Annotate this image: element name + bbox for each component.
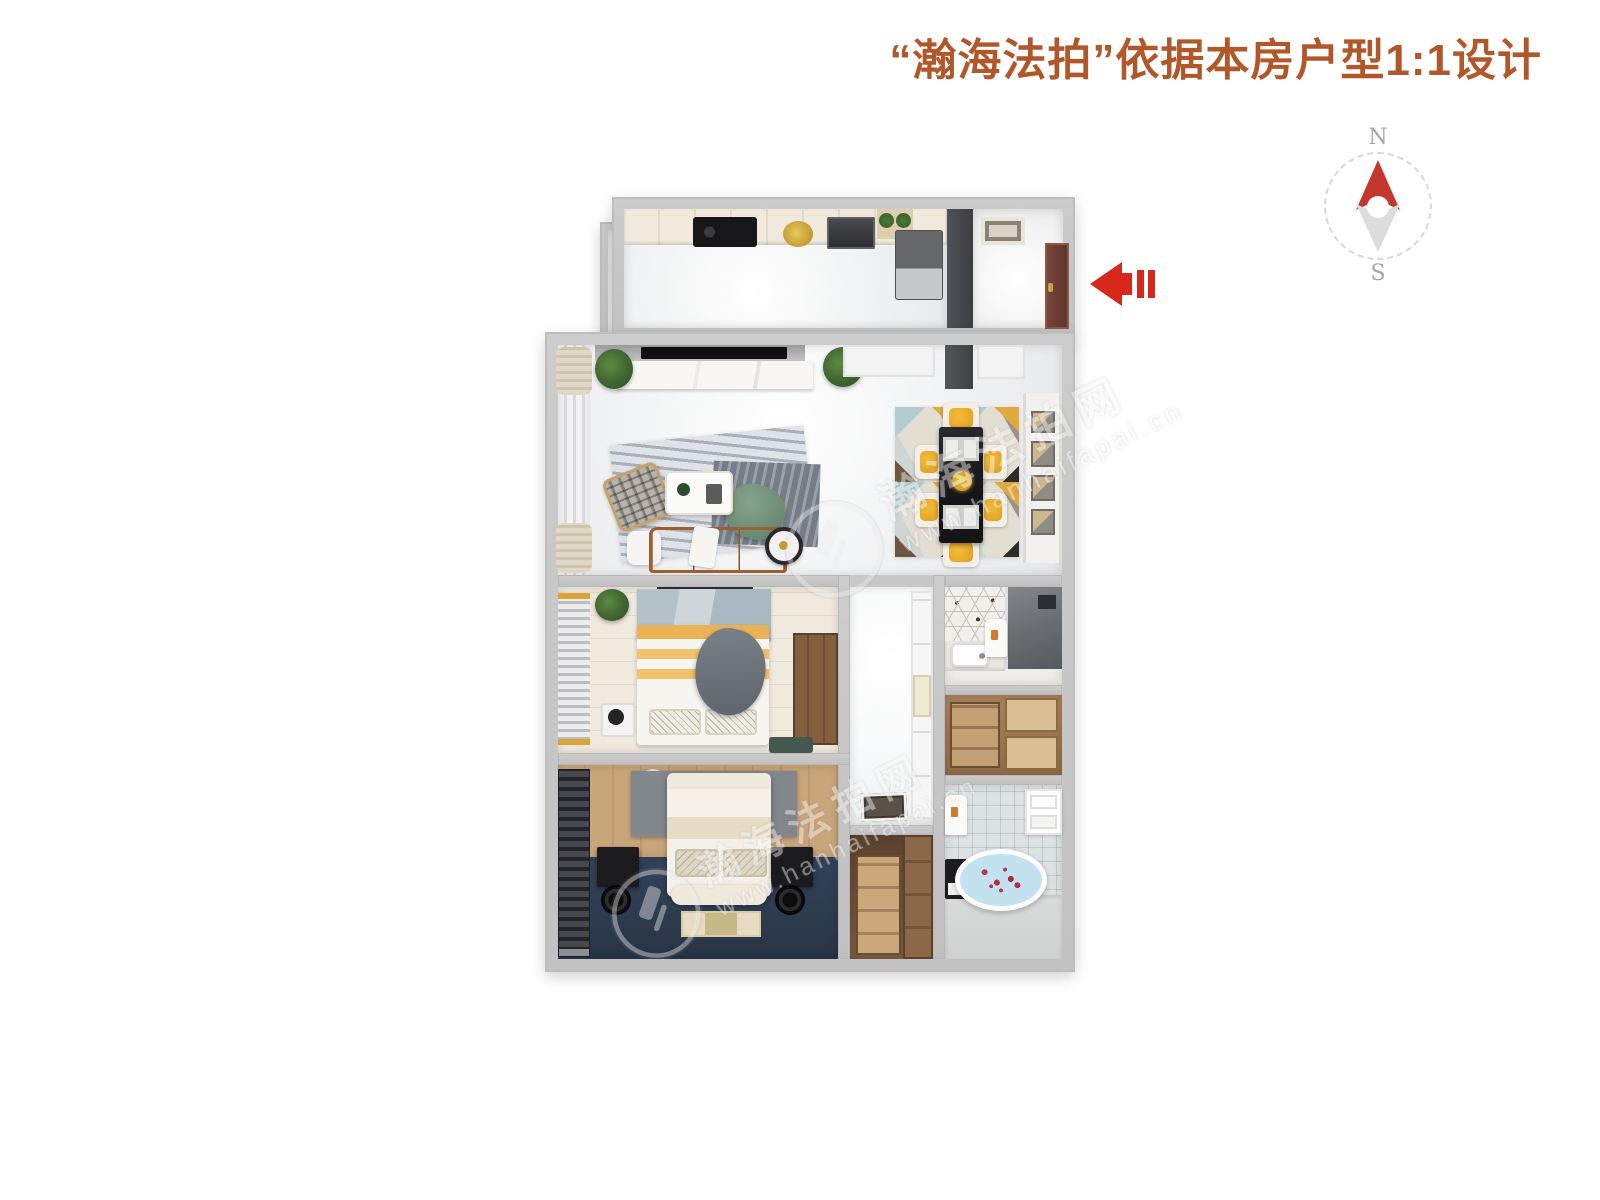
placemat xyxy=(961,505,979,529)
arrow-head xyxy=(1090,262,1122,306)
picture-frame xyxy=(1031,411,1055,433)
placemat xyxy=(961,437,979,461)
table-flowers xyxy=(952,471,972,491)
entry-floor-frame xyxy=(981,217,1025,245)
arrow-tail xyxy=(1120,273,1132,295)
stove-cooktop xyxy=(693,217,757,247)
bed1-pillow xyxy=(675,849,719,877)
wall xyxy=(558,575,850,587)
bed2-pillow xyxy=(649,709,701,735)
compass: N S xyxy=(1310,126,1446,296)
bathtub-water xyxy=(960,854,1042,906)
bed1-pillow xyxy=(723,849,767,877)
wall xyxy=(945,685,1062,695)
entry-door xyxy=(1045,243,1069,329)
living-plant xyxy=(595,349,633,389)
wall xyxy=(945,575,1062,587)
floor-plan xyxy=(545,197,1075,972)
compass-needle-icon xyxy=(1330,158,1426,254)
bedroom2-wardrobe xyxy=(793,633,838,745)
wall xyxy=(850,825,933,835)
compass-north-label: N xyxy=(1368,126,1387,150)
bathtub xyxy=(955,849,1047,911)
bathroom1-shelf xyxy=(985,619,1007,657)
entry-partition-wall xyxy=(947,209,973,328)
bedroom1-nightstand xyxy=(597,847,639,887)
dining-table xyxy=(939,427,983,543)
round-side-table xyxy=(765,527,803,565)
bedroom2-nightstand xyxy=(601,703,635,737)
picture-frame xyxy=(1031,475,1055,501)
bathroom2-shelf xyxy=(945,795,967,835)
bed-1 xyxy=(667,773,771,897)
wall xyxy=(933,575,945,959)
dining-sideboard xyxy=(1023,393,1062,563)
bedroom1-window-blinds xyxy=(558,769,590,957)
storage-cabinet xyxy=(1005,736,1058,770)
storage-shelves xyxy=(950,702,1000,768)
dining-chair xyxy=(979,493,1007,527)
compass-south-label: S xyxy=(1370,262,1385,286)
bedroom1-rug xyxy=(681,911,761,937)
oven xyxy=(827,217,875,249)
shower xyxy=(1005,587,1062,669)
placemat xyxy=(943,437,961,461)
kitchen-entry-block xyxy=(612,197,1075,340)
white-door xyxy=(977,345,1025,379)
bedroom2-window-blinds xyxy=(558,593,590,745)
poster-canvas: “瀚海法拍”依据本房户型1:1设计 N S xyxy=(0,0,1600,1200)
hall-cabinet xyxy=(843,345,935,377)
arrow-bar xyxy=(1148,270,1155,298)
closet-shelves xyxy=(856,855,901,955)
wall xyxy=(558,753,850,765)
towel-shelf xyxy=(1025,789,1062,835)
picture-frame xyxy=(1031,441,1055,467)
closet-wardrobe xyxy=(903,835,933,959)
arrow-bar xyxy=(1137,270,1144,298)
bedroom2-plant xyxy=(595,589,629,621)
tall-cabinet xyxy=(945,345,973,389)
kitchen-sink xyxy=(783,221,813,247)
television xyxy=(641,347,787,359)
curtain-bundle xyxy=(556,347,592,395)
corridor-floor-frame xyxy=(861,792,908,822)
picture-frame xyxy=(1031,509,1055,535)
main-block xyxy=(545,332,1075,972)
dining-chair xyxy=(979,445,1007,479)
placemat xyxy=(943,505,961,529)
entrance-arrow-icon xyxy=(1090,260,1160,308)
coffee-table xyxy=(665,471,733,515)
storage-cabinet xyxy=(1005,698,1058,732)
bedroom1-nightstand xyxy=(771,847,813,887)
curtain-bundle xyxy=(556,523,592,573)
wall xyxy=(838,575,850,959)
bathroom1-sink xyxy=(951,643,989,667)
corridor-art xyxy=(913,675,931,717)
page-title: “瀚海法拍”依据本房户型1:1设计 xyxy=(889,24,1542,88)
bedroom2-bench xyxy=(769,737,813,753)
refrigerator xyxy=(895,230,943,300)
tv-console xyxy=(617,361,813,389)
bed1-ottoman xyxy=(671,885,767,905)
compass-ring xyxy=(1324,152,1432,260)
wall xyxy=(945,775,1062,785)
